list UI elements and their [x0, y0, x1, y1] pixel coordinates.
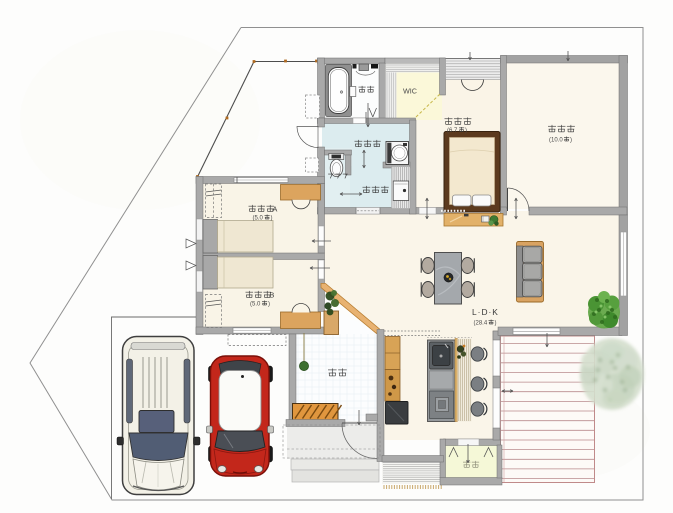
svg-text:A: A	[273, 205, 278, 214]
svg-text:(10.0: (10.0	[549, 138, 563, 144]
svg-text:(28.4: (28.4	[474, 321, 488, 327]
svg-text:(5.0: (5.0	[253, 216, 264, 222]
svg-text:): )	[268, 302, 270, 308]
svg-text:WIC: WIC	[403, 87, 417, 96]
svg-text:): )	[465, 128, 467, 134]
svg-text:): )	[495, 321, 497, 327]
svg-text:(5.0: (5.0	[250, 302, 261, 308]
svg-text:): )	[570, 138, 572, 144]
svg-text:(6.7: (6.7	[447, 128, 458, 134]
svg-text:B: B	[270, 291, 275, 300]
svg-text:): )	[271, 216, 273, 222]
svg-text:L·D·K: L·D·K	[472, 307, 499, 317]
